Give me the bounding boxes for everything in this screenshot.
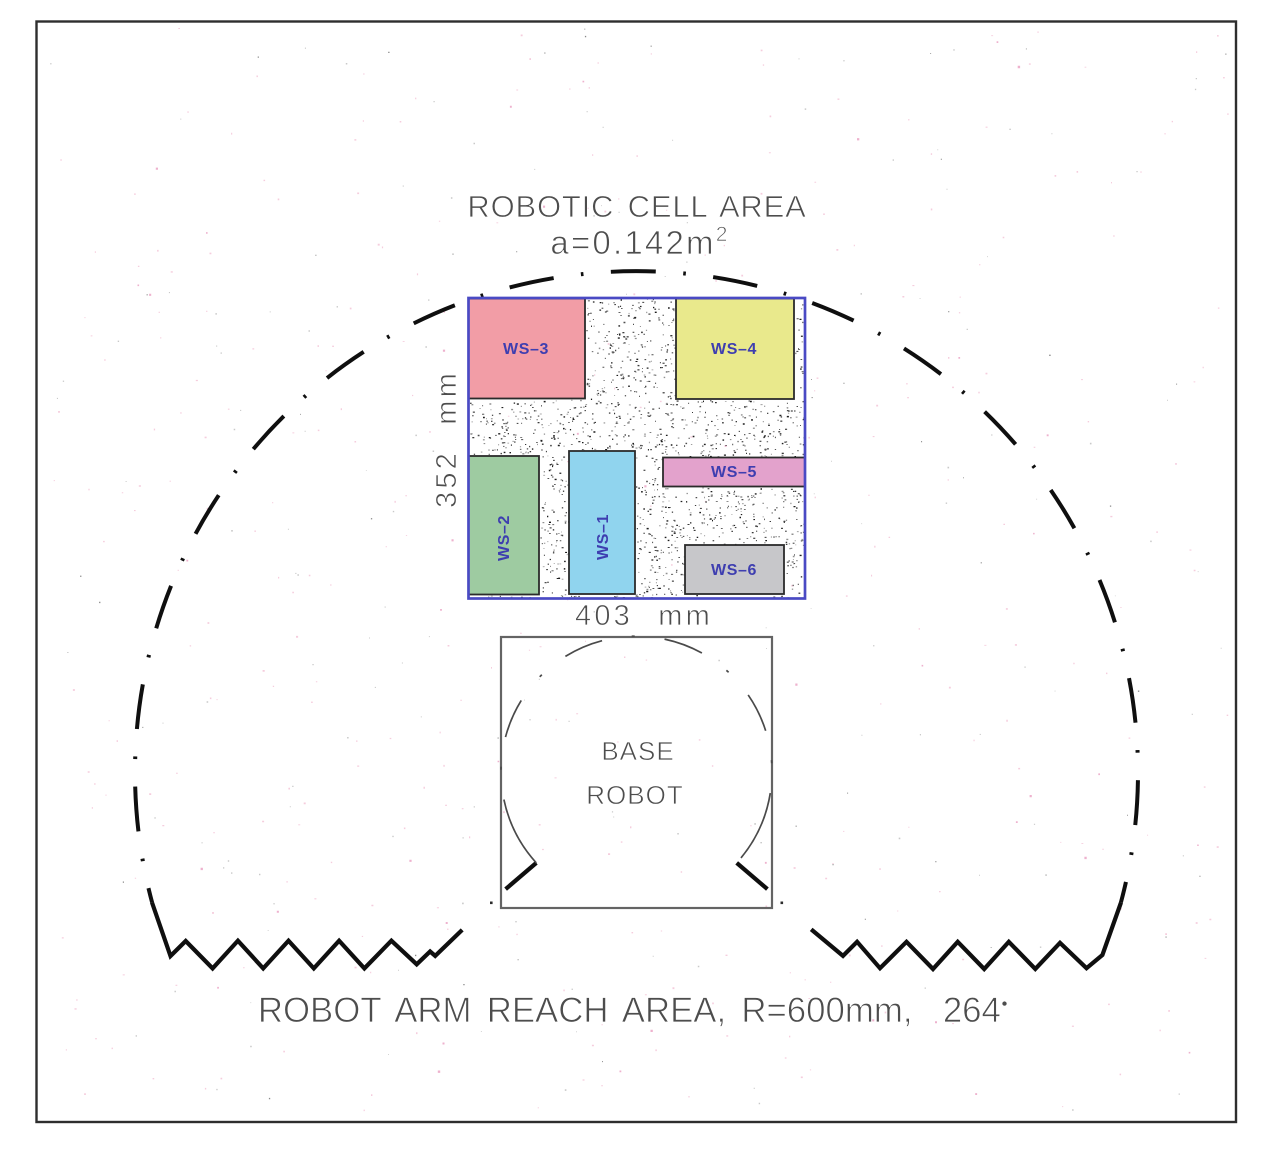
svg-text:a=0.142m2: a=0.142m2 xyxy=(550,223,729,261)
svg-text:403 mm: 403 mm xyxy=(575,600,713,632)
svg-text:BASE: BASE xyxy=(601,736,674,766)
svg-text:WS–2: WS–2 xyxy=(496,515,513,561)
svg-text:WS–4: WS–4 xyxy=(711,341,757,358)
svg-text:WS–3: WS–3 xyxy=(503,341,549,358)
svg-text:WS–1: WS–1 xyxy=(595,514,612,560)
svg-text:WS–6: WS–6 xyxy=(711,562,757,579)
svg-text:ROBOT: ROBOT xyxy=(586,780,683,810)
svg-text:352 mm: 352 mm xyxy=(431,370,463,508)
svg-text:ROBOT ARM REACH AREA, R=600mm,: ROBOT ARM REACH AREA, R=600mm, 264● xyxy=(258,991,1008,1030)
svg-text:ROBOTIC CELL AREA: ROBOTIC CELL AREA xyxy=(467,189,806,224)
svg-text:WS–5: WS–5 xyxy=(711,464,757,481)
